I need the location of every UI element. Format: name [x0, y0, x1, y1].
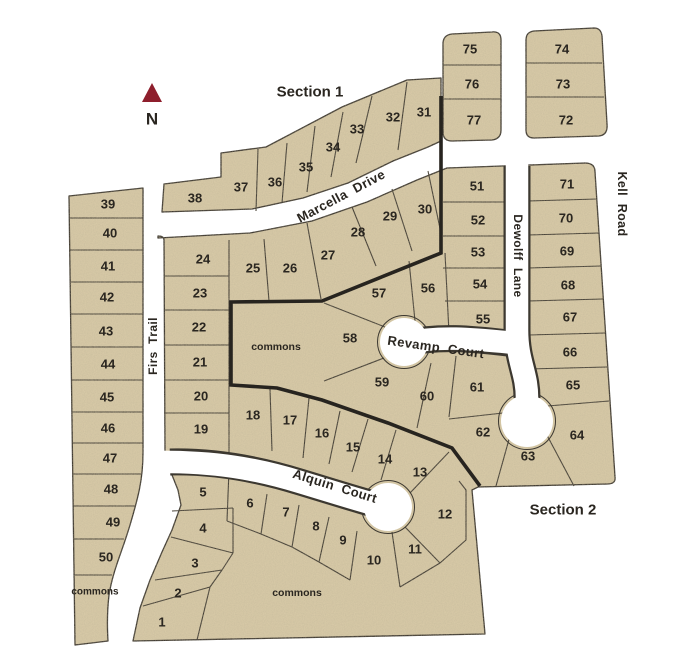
- lot-14-label: 14: [378, 452, 393, 467]
- lot-68-label: 68: [561, 278, 575, 293]
- lot-70-label: 70: [559, 211, 573, 226]
- lot-41-label: 41: [101, 259, 115, 274]
- lot-35-label: 35: [299, 160, 313, 175]
- lot-45-label: 45: [100, 390, 114, 405]
- lot-1-label: 1: [158, 615, 165, 630]
- lot-3-label: 3: [191, 556, 198, 571]
- lot-67-label: 67: [563, 310, 577, 325]
- plat-map-page: N Section 1Section 2 Marcella DriveFirs …: [0, 0, 688, 664]
- lot-block-west-column: [69, 188, 143, 645]
- section-label-1: Section 1: [277, 84, 344, 101]
- lot-22-label: 22: [192, 320, 206, 335]
- lot-69-label: 69: [560, 244, 574, 259]
- lot-30-label: 30: [418, 202, 432, 217]
- dewolff-culdesac: [501, 395, 553, 447]
- lot-51-label: 51: [470, 179, 484, 194]
- lot-28-label: 28: [351, 225, 365, 240]
- lot-77-label: 77: [467, 113, 481, 128]
- north-arrow-label: N: [146, 110, 158, 129]
- lot-6-label: 6: [246, 496, 253, 511]
- lot-2-label: 2: [174, 586, 181, 601]
- street-label-dewolff-lane: Dewolff Lane: [511, 214, 525, 297]
- lot-10-label: 10: [367, 553, 381, 568]
- lot-60-label: 60: [420, 389, 434, 404]
- plat-map: N Section 1Section 2 Marcella DriveFirs …: [0, 0, 688, 664]
- lot-7-label: 7: [282, 505, 289, 520]
- lot-32-label: 32: [386, 110, 400, 125]
- commons-label: commons: [272, 587, 322, 599]
- section-label-2: Section 2: [530, 502, 597, 519]
- lot-76-label: 76: [465, 77, 479, 92]
- lot-58-label: 58: [343, 331, 357, 346]
- lot-29-label: 29: [383, 209, 397, 224]
- lot-21-label: 21: [193, 355, 207, 370]
- lot-47-label: 47: [103, 451, 117, 466]
- lot-19-label: 19: [194, 422, 208, 437]
- lot-4-label: 4: [199, 521, 207, 536]
- lot-24-label: 24: [196, 252, 211, 267]
- lot-8-label: 8: [312, 519, 319, 534]
- lot-50-label: 50: [99, 550, 113, 565]
- lot-34-label: 34: [326, 140, 341, 155]
- commons-label: commons: [71, 587, 119, 598]
- lot-40-label: 40: [103, 226, 117, 241]
- lot-12-label: 12: [438, 507, 452, 522]
- lot-74-label: 74: [555, 42, 570, 57]
- lot-9-label: 9: [339, 533, 346, 548]
- lot-46-label: 46: [101, 421, 115, 436]
- lot-5-label: 5: [199, 485, 206, 500]
- north-arrow-icon: [142, 83, 162, 102]
- lot-53-label: 53: [471, 245, 485, 260]
- lot-42-label: 42: [100, 290, 114, 305]
- lot-52-label: 52: [471, 213, 485, 228]
- lot-61-label: 61: [470, 380, 484, 395]
- lot-43-label: 43: [99, 324, 113, 339]
- lot-36-label: 36: [268, 175, 282, 190]
- lot-62-label: 62: [476, 425, 490, 440]
- lot-57-label: 57: [372, 286, 386, 301]
- lot-75-label: 75: [463, 42, 477, 57]
- street-label-firs-trail: Firs Trail: [146, 317, 160, 375]
- lot-11-label: 11: [408, 542, 422, 557]
- lot-63-label: 63: [521, 449, 535, 464]
- lot-66-label: 66: [563, 345, 577, 360]
- lot-25-label: 25: [246, 261, 260, 276]
- lot-44-label: 44: [101, 357, 116, 372]
- lot-16-label: 16: [315, 426, 329, 441]
- lot-27-label: 27: [321, 248, 335, 263]
- commons-label: commons: [251, 341, 301, 353]
- lot-23-label: 23: [193, 286, 207, 301]
- lot-54-label: 54: [473, 277, 488, 292]
- lot-59-label: 59: [375, 375, 389, 390]
- lot-56-label: 56: [421, 281, 435, 296]
- lot-33-label: 33: [350, 122, 364, 137]
- lot-73-label: 73: [556, 77, 570, 92]
- lot-26-label: 26: [283, 261, 297, 276]
- lot-15-label: 15: [346, 440, 360, 455]
- lot-38-label: 38: [188, 191, 202, 206]
- lot-31-label: 31: [417, 105, 431, 120]
- north-arrow: N: [142, 83, 162, 129]
- lot-13-label: 13: [413, 465, 427, 480]
- lot-49-label: 49: [106, 515, 120, 530]
- lot-71-label: 71: [560, 177, 574, 192]
- street-label-kell-road: Kell Road: [615, 171, 629, 236]
- lot-18-label: 18: [246, 408, 260, 423]
- lot-39-label: 39: [101, 197, 115, 212]
- lot-37-label: 37: [234, 180, 248, 195]
- lot-17-label: 17: [283, 413, 297, 428]
- lot-20-label: 20: [194, 389, 208, 404]
- lot-55-label: 55: [476, 312, 490, 327]
- lot-48-label: 48: [104, 482, 118, 497]
- lot-72-label: 72: [559, 113, 573, 128]
- lot-65-label: 65: [566, 378, 580, 393]
- lot-64-label: 64: [570, 428, 585, 443]
